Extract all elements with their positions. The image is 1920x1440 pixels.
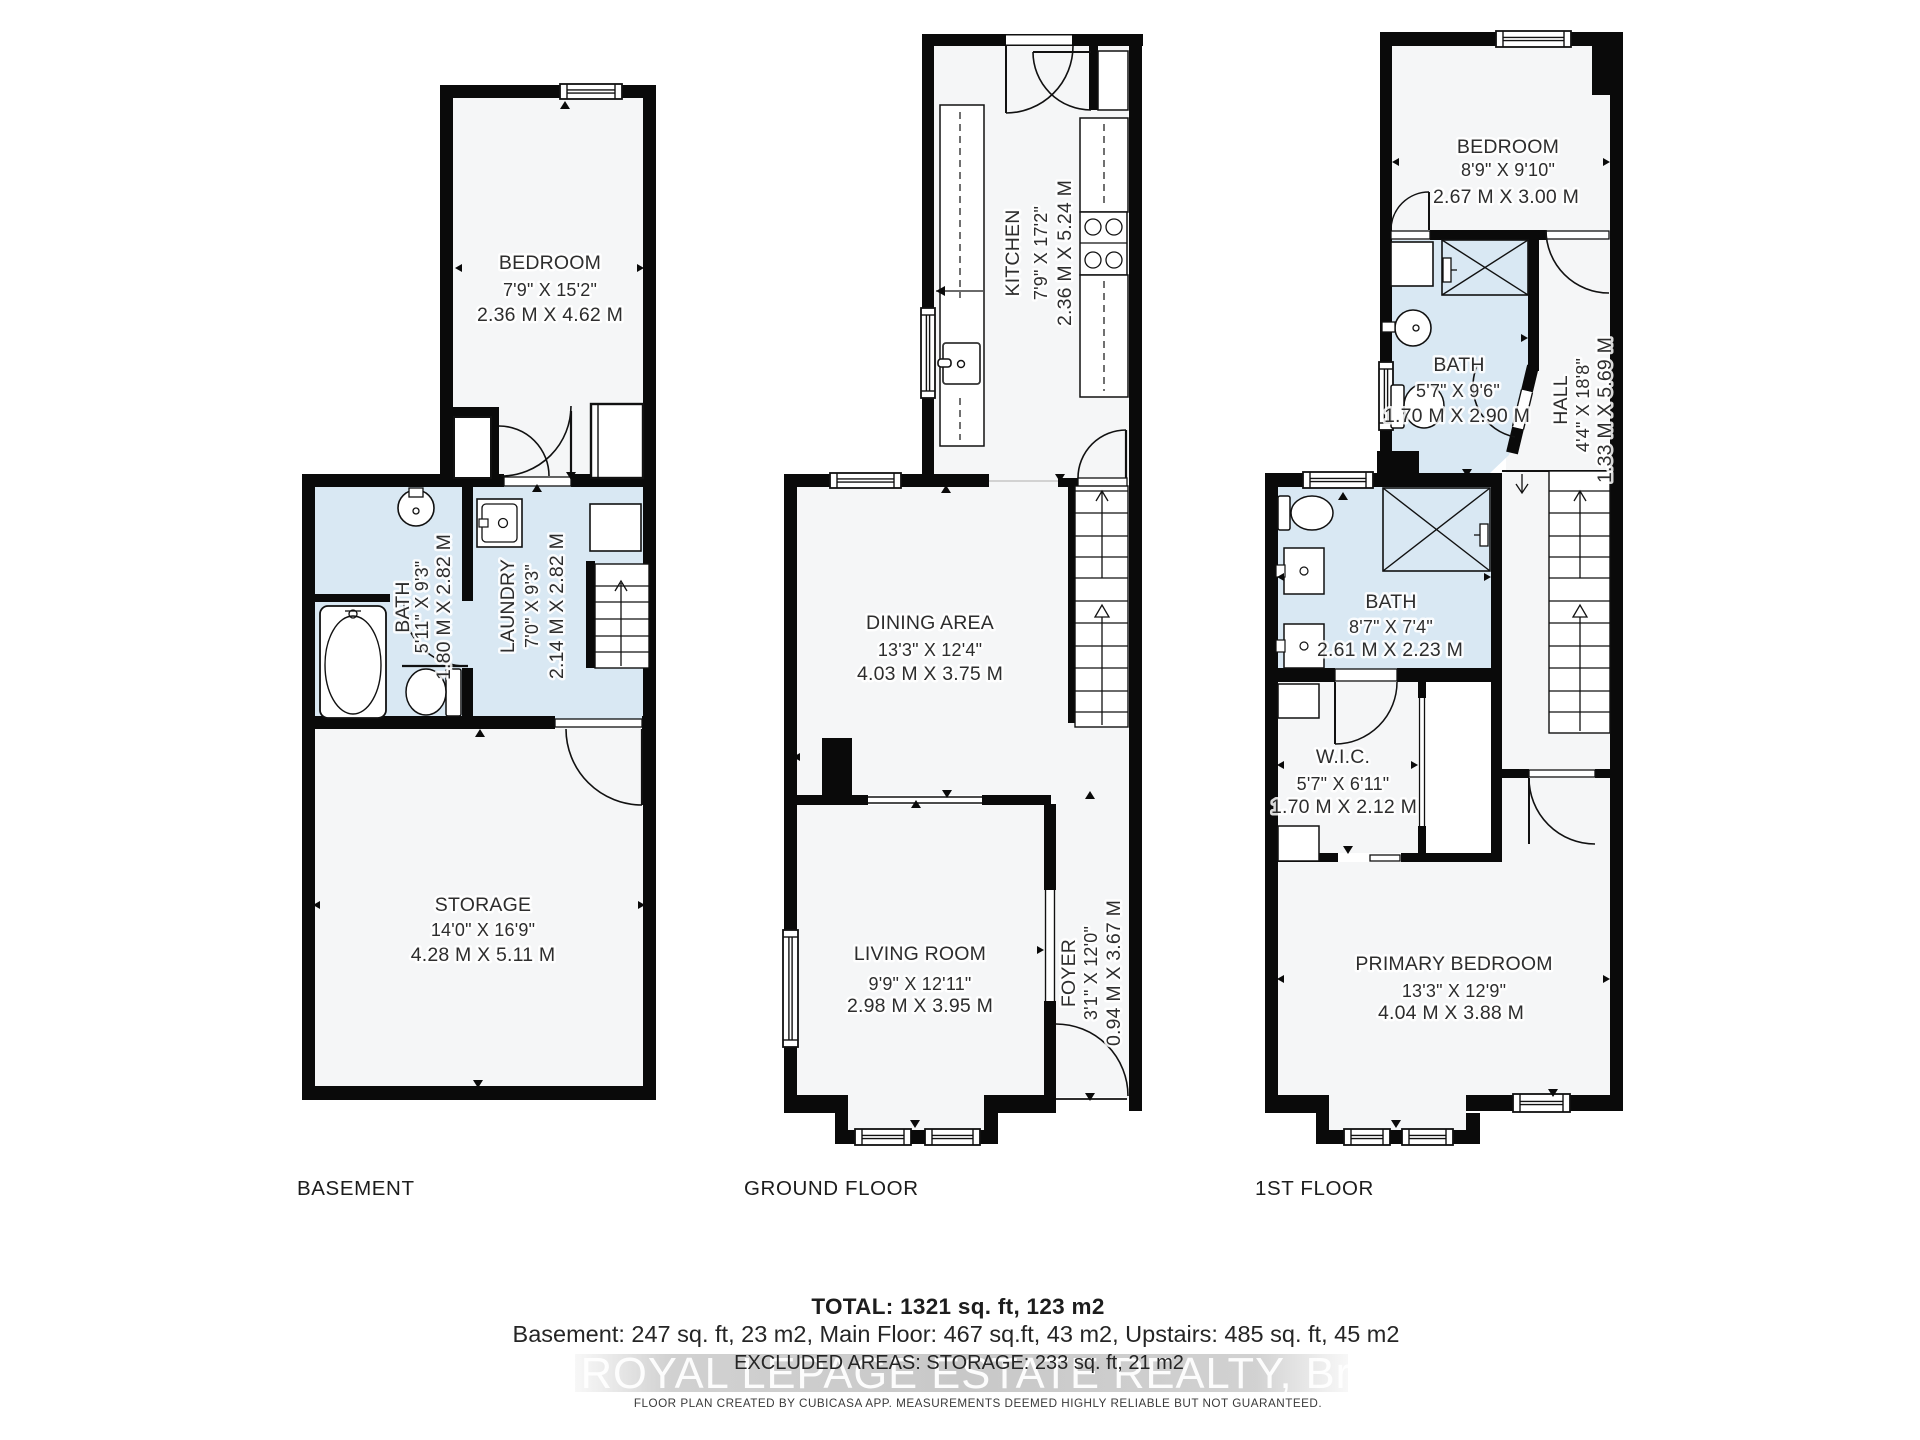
svg-text:Basement: 247 sq. ft, 23 m2, M: Basement: 247 sq. ft, 23 m2, Main Floor:… (513, 1321, 1400, 1347)
svg-text:3'1" X 12'0": 3'1" X 12'0" (1081, 926, 1101, 1020)
svg-text:4.03 M X 3.75 M: 4.03 M X 3.75 M (857, 663, 1003, 685)
svg-text:1.70 M X 2.90 M: 1.70 M X 2.90 M (1384, 405, 1530, 427)
svg-text:0.94 M X 3.67 M: 0.94 M X 3.67 M (1103, 900, 1125, 1046)
svg-text:TOTAL: 1321 sq. ft, 123 m2: TOTAL: 1321 sq. ft, 123 m2 (811, 1294, 1104, 1319)
svg-text:1.33 M X 5.69 M: 1.33 M X 5.69 M (1594, 337, 1616, 483)
svg-text:9'9" X 12'11": 9'9" X 12'11" (869, 974, 972, 994)
svg-text:DINING AREA: DINING AREA (866, 612, 994, 634)
svg-text:LAUNDRY: LAUNDRY (497, 559, 519, 653)
svg-text:1.80 M X 2.82 M: 1.80 M X 2.82 M (433, 534, 455, 680)
svg-text:PRIMARY BEDROOM: PRIMARY BEDROOM (1355, 953, 1552, 975)
svg-text:BASEMENT: BASEMENT (297, 1177, 415, 1200)
svg-text:2.14 M X 2.82 M: 2.14 M X 2.82 M (546, 533, 568, 679)
svg-text:W.I.C.: W.I.C. (1316, 746, 1370, 768)
svg-text:1.70 M X 2.12 M: 1.70 M X 2.12 M (1271, 796, 1417, 818)
svg-text:8'7" X 7'4": 8'7" X 7'4" (1349, 617, 1433, 637)
svg-text:FLOOR PLAN CREATED BY CUBICASA: FLOOR PLAN CREATED BY CUBICASA APP. MEAS… (634, 1397, 1322, 1410)
svg-text:14'0" X 16'9": 14'0" X 16'9" (431, 920, 535, 940)
svg-text:BEDROOM: BEDROOM (499, 252, 601, 274)
svg-text:4.04 M X 3.88 M: 4.04 M X 3.88 M (1378, 1002, 1524, 1024)
svg-text:8'9" X 9'10": 8'9" X 9'10" (1461, 160, 1555, 180)
svg-text:4'4" X 18'8": 4'4" X 18'8" (1573, 358, 1593, 452)
svg-text:BATH: BATH (1433, 354, 1484, 376)
svg-text:GROUND FLOOR: GROUND FLOOR (744, 1177, 919, 1200)
svg-text:HALL: HALL (1550, 375, 1572, 425)
svg-text:2.67 M X 3.00 M: 2.67 M X 3.00 M (1433, 186, 1579, 208)
svg-text:2.98 M X 3.95 M: 2.98 M X 3.95 M (847, 995, 993, 1017)
svg-text:4.28 M X 5.11 M: 4.28 M X 5.11 M (411, 944, 556, 966)
svg-text:BATH: BATH (1365, 591, 1416, 613)
svg-text:5'11" X 9'3": 5'11" X 9'3" (412, 561, 432, 654)
svg-text:7'0" X 9'3": 7'0" X 9'3" (522, 564, 542, 648)
svg-text:BEDROOM: BEDROOM (1457, 136, 1559, 158)
svg-text:KITCHEN: KITCHEN (1002, 210, 1024, 297)
svg-text:2.61 M X 2.23 M: 2.61 M X 2.23 M (1317, 639, 1463, 661)
svg-text:STORAGE: STORAGE (435, 894, 531, 916)
svg-text:13'3" X 12'9": 13'3" X 12'9" (1402, 981, 1506, 1001)
svg-text:7'9" X 17'2": 7'9" X 17'2" (1031, 206, 1051, 300)
svg-text:2.36 M X 4.62 M: 2.36 M X 4.62 M (477, 304, 623, 326)
svg-text:1ST FLOOR: 1ST FLOOR (1255, 1177, 1374, 1200)
svg-text:FOYER: FOYER (1058, 939, 1080, 1007)
svg-text:BATH: BATH (392, 581, 414, 632)
svg-text:5'7" X 6'11": 5'7" X 6'11" (1297, 774, 1390, 794)
svg-text:5'7" X 9'6": 5'7" X 9'6" (1416, 381, 1500, 401)
svg-text:13'3" X 12'4": 13'3" X 12'4" (878, 640, 982, 660)
svg-text:2.36 M X 5.24 M: 2.36 M X 5.24 M (1054, 180, 1076, 326)
svg-text:EXCLUDED AREAS: STORAGE: 233 s: EXCLUDED AREAS: STORAGE: 233 sq. ft, 21 … (734, 1352, 1184, 1374)
svg-text:LIVING ROOM: LIVING ROOM (854, 943, 986, 965)
svg-text:7'9" X 15'2": 7'9" X 15'2" (503, 280, 597, 300)
